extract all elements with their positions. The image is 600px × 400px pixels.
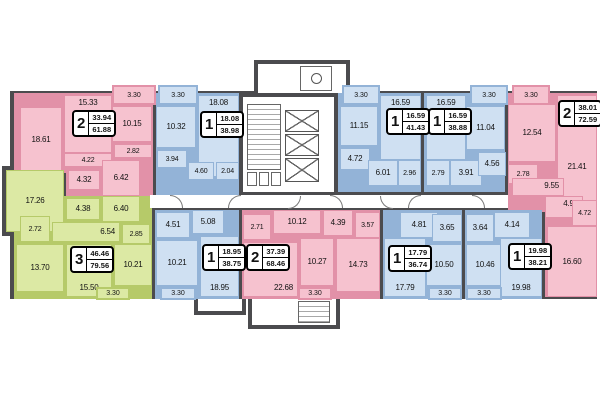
- a2-wc: 2.04: [216, 162, 239, 180]
- a7-living-area: 18.95: [219, 246, 244, 258]
- a7-hall: 5.08: [192, 210, 224, 234]
- utility-cell-1: [247, 172, 257, 186]
- a3-kitchen: 11.15: [340, 106, 378, 146]
- a3-unit-box: 1 16.5941.43: [386, 108, 430, 135]
- trash-chute-icon: [311, 73, 322, 84]
- a3-total-area: 41.43: [403, 122, 428, 133]
- entrance-steps: [298, 301, 330, 323]
- a8-room-count: 2: [248, 246, 263, 269]
- a8-living-room-2: 14.73: [336, 238, 380, 292]
- corridor: [150, 195, 508, 208]
- a7-room-count: 1: [204, 246, 219, 269]
- elevator-shaft-3: [285, 158, 319, 182]
- a4-balcony: 3.30: [470, 85, 508, 105]
- a5-corridor: 9.55: [512, 178, 564, 196]
- a2-bathroom: 3.94: [157, 150, 187, 168]
- a2-balcony: 3.30: [158, 85, 198, 105]
- a5-kitchen: 12.54: [508, 104, 556, 162]
- a8-hall: 10.12: [273, 210, 321, 234]
- a7-total-area: 38.75: [219, 258, 244, 269]
- a9-room-count: 1: [390, 247, 405, 270]
- a3-bathroom: 4.72: [340, 148, 370, 170]
- a8-living-area: 37.39: [263, 246, 288, 258]
- a4-unit-box: 1 16.5938.88: [428, 108, 472, 135]
- a2-living-area: 18.08: [217, 113, 242, 125]
- a1-living-area: 33.94: [89, 112, 114, 124]
- a1-total-area: 61.88: [89, 124, 114, 135]
- a9-total-area: 36.74: [405, 259, 430, 270]
- a10-unit-box: 1 19.9838.21: [508, 243, 552, 270]
- trash-chute-room: [300, 66, 332, 91]
- a3-living-area: 16.59: [403, 110, 428, 122]
- a5-living-area: 38.01: [575, 102, 600, 114]
- a6-room-count: 3: [72, 248, 87, 271]
- a6-living-area: 46.46: [87, 248, 112, 260]
- a10-living-area: 19.98: [525, 245, 550, 257]
- a4-room-count: 1: [430, 110, 445, 133]
- a10-hall: 4.14: [494, 212, 530, 238]
- a4-living-area: 16.59: [445, 110, 470, 122]
- utility-cell-2: [259, 172, 269, 186]
- a5-total-area: 72.59: [575, 114, 600, 125]
- a8-wardrobe: 2.71: [243, 214, 271, 240]
- a8-balcony: 3.30: [298, 287, 332, 300]
- a8-unit-box: 2 37.3968.46: [246, 244, 290, 271]
- a6-kitchen: 10.21: [114, 244, 152, 286]
- a7-unit-box: 1 18.9538.75: [202, 244, 246, 271]
- elevator-shaft-2: [285, 134, 319, 156]
- staircase: [247, 104, 281, 170]
- floor-plan: 18.61 15.33 10.15 4.22 2.82 4.32 6.42 10…: [0, 0, 600, 400]
- a5-unit-box: 2 38.0172.59: [558, 100, 600, 127]
- a9-bathroom: 3.65: [432, 214, 462, 242]
- a7-kitchen: 10.21: [156, 240, 198, 286]
- a3-hall: 6.01: [368, 160, 398, 186]
- a4-wc: 2.79: [426, 160, 450, 186]
- a5-balcony: 3.30: [512, 85, 550, 105]
- a1-room-count: 2: [74, 112, 89, 135]
- a6-unit-box: 3 46.4679.56: [70, 246, 114, 273]
- a1-wc: 2.82: [114, 144, 152, 158]
- a1-unit-box: 2 33.9461.88: [72, 110, 116, 137]
- a10-room-count: 1: [510, 245, 525, 268]
- a5-living-room-2: 16.60: [547, 226, 597, 297]
- a8-total-area: 68.46: [263, 258, 288, 269]
- a6-balcony: 3.30: [96, 287, 130, 300]
- a6-corridor-1: 6.40: [102, 196, 140, 222]
- a8-bathroom: 4.39: [323, 210, 353, 236]
- a5-room-count: 2: [560, 102, 575, 125]
- a5-hall: 4.72: [572, 200, 597, 226]
- porch: [198, 299, 242, 311]
- a10-total-area: 38.21: [525, 257, 550, 268]
- a3-room-count: 1: [388, 110, 403, 133]
- a10-kitchen: 10.46: [466, 244, 504, 286]
- a6-total-area: 79.56: [87, 260, 112, 271]
- a9-balcony: 3.30: [428, 287, 462, 300]
- a8-kitchen: 10.27: [300, 238, 334, 286]
- a6-living-room-2: 13.70: [16, 244, 64, 292]
- a1-corridor: 6.42: [102, 160, 140, 196]
- a3-balcony: 3.30: [342, 85, 380, 105]
- a4-bathroom: 4.56: [478, 152, 506, 176]
- a9-living-area: 17.79: [405, 247, 430, 259]
- a2-hall: 4.60: [188, 162, 214, 180]
- elevator-shaft-1: [285, 110, 319, 132]
- a10-bathroom: 3.64: [466, 214, 494, 242]
- a1-bathroom: 4.32: [68, 170, 100, 190]
- a6-corridor-2: 6.54: [52, 222, 120, 242]
- a2-total-area: 38.98: [217, 125, 242, 136]
- a2-unit-box: 1 18.0838.98: [200, 111, 244, 138]
- a2-room-count: 1: [202, 113, 217, 136]
- utility-cell-3: [271, 172, 281, 186]
- a7-balcony: 3.30: [160, 287, 196, 300]
- a2-kitchen: 10.32: [156, 106, 196, 148]
- a4-total-area: 38.88: [445, 122, 470, 133]
- a7-bathroom: 4.51: [156, 212, 190, 238]
- a1-kitchen: 10.15: [112, 106, 152, 142]
- a1-balcony: 3.30: [112, 85, 156, 105]
- a6-wardrobe: 2.72: [20, 216, 50, 242]
- a8-wc: 3.57: [355, 212, 380, 238]
- a3-wc: 2.96: [398, 160, 421, 186]
- a9-unit-box: 1 17.7936.74: [388, 245, 432, 272]
- a6-bathroom: 4.38: [66, 198, 100, 220]
- a6-wc: 2.85: [122, 224, 150, 244]
- a1-living-room-1: 18.61: [20, 107, 62, 173]
- a10-balcony: 3.30: [466, 287, 502, 300]
